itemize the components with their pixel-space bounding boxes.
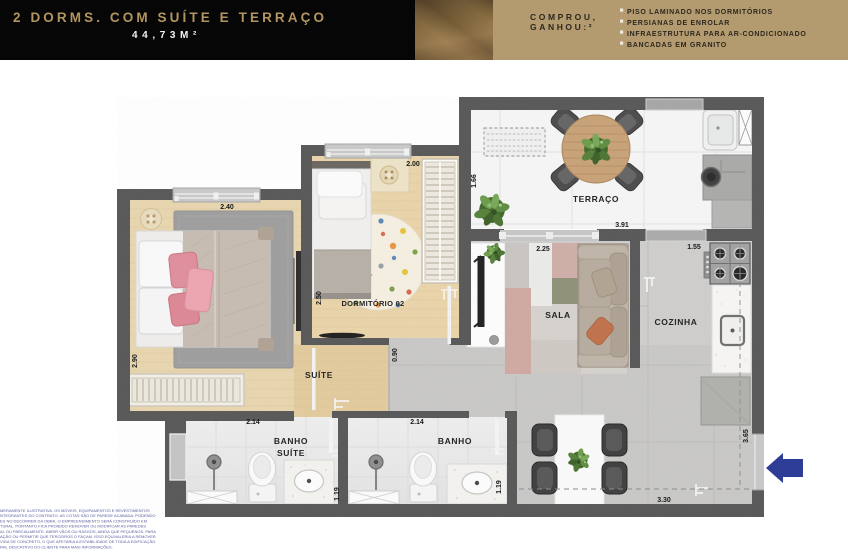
- svg-text:BANHO: BANHO: [274, 436, 308, 446]
- svg-text:1.19: 1.19: [496, 480, 503, 494]
- svg-text:2.00: 2.00: [406, 161, 420, 168]
- svg-text:3.91: 3.91: [615, 222, 629, 229]
- svg-text:BANHO: BANHO: [438, 436, 472, 446]
- svg-text:2.14: 2.14: [246, 419, 260, 426]
- svg-text:1.55: 1.55: [687, 244, 701, 251]
- svg-text:1.19: 1.19: [334, 487, 341, 501]
- svg-text:BANCADAS EM GRANITO: BANCADAS EM GRANITO: [627, 42, 727, 49]
- svg-text:44,73M²: 44,73M²: [132, 30, 201, 41]
- svg-text:PERSIANAS DE ENROLAR: PERSIANAS DE ENROLAR: [627, 20, 730, 27]
- svg-text:2.50: 2.50: [316, 291, 323, 305]
- svg-text:INFRAESTRUTURA PARA AR-CONDICI: INFRAESTRUTURA PARA AR-CONDICIONADO: [627, 31, 807, 38]
- svg-text:COZINHA: COZINHA: [655, 317, 698, 327]
- svg-text:COMPROU,: COMPROU,: [530, 12, 598, 22]
- svg-text:DORMITÓRIO 02: DORMITÓRIO 02: [341, 299, 404, 308]
- svg-text:2.40: 2.40: [220, 204, 234, 211]
- svg-text:RAL DESCRITIVO DO CLIENTE PARA: RAL DESCRITIVO DO CLIENTE PARA MAIS INFO…: [0, 544, 113, 549]
- svg-text:2 DORMS. COM SUÍTE E TERRAÇO: 2 DORMS. COM SUÍTE E TERRAÇO: [13, 10, 327, 25]
- svg-text:2.90: 2.90: [132, 354, 139, 368]
- svg-text:PISO LAMINADO NOS DORMITÓRIOS: PISO LAMINADO NOS DORMITÓRIOS: [627, 7, 773, 16]
- svg-text:SALA: SALA: [545, 310, 571, 320]
- svg-text:SUÍTE: SUÍTE: [277, 448, 305, 458]
- svg-text:SUÍTE: SUÍTE: [305, 370, 333, 380]
- svg-text:2.14: 2.14: [410, 419, 424, 426]
- svg-text:3.30: 3.30: [657, 497, 671, 504]
- svg-text:2.25: 2.25: [536, 246, 550, 253]
- svg-text:3.65: 3.65: [743, 429, 750, 443]
- svg-text:TERRAÇO: TERRAÇO: [573, 194, 619, 204]
- svg-text:0.90: 0.90: [392, 348, 399, 362]
- svg-text:GANHOU:²: GANHOU:²: [530, 22, 594, 32]
- svg-text:1.66: 1.66: [471, 174, 478, 188]
